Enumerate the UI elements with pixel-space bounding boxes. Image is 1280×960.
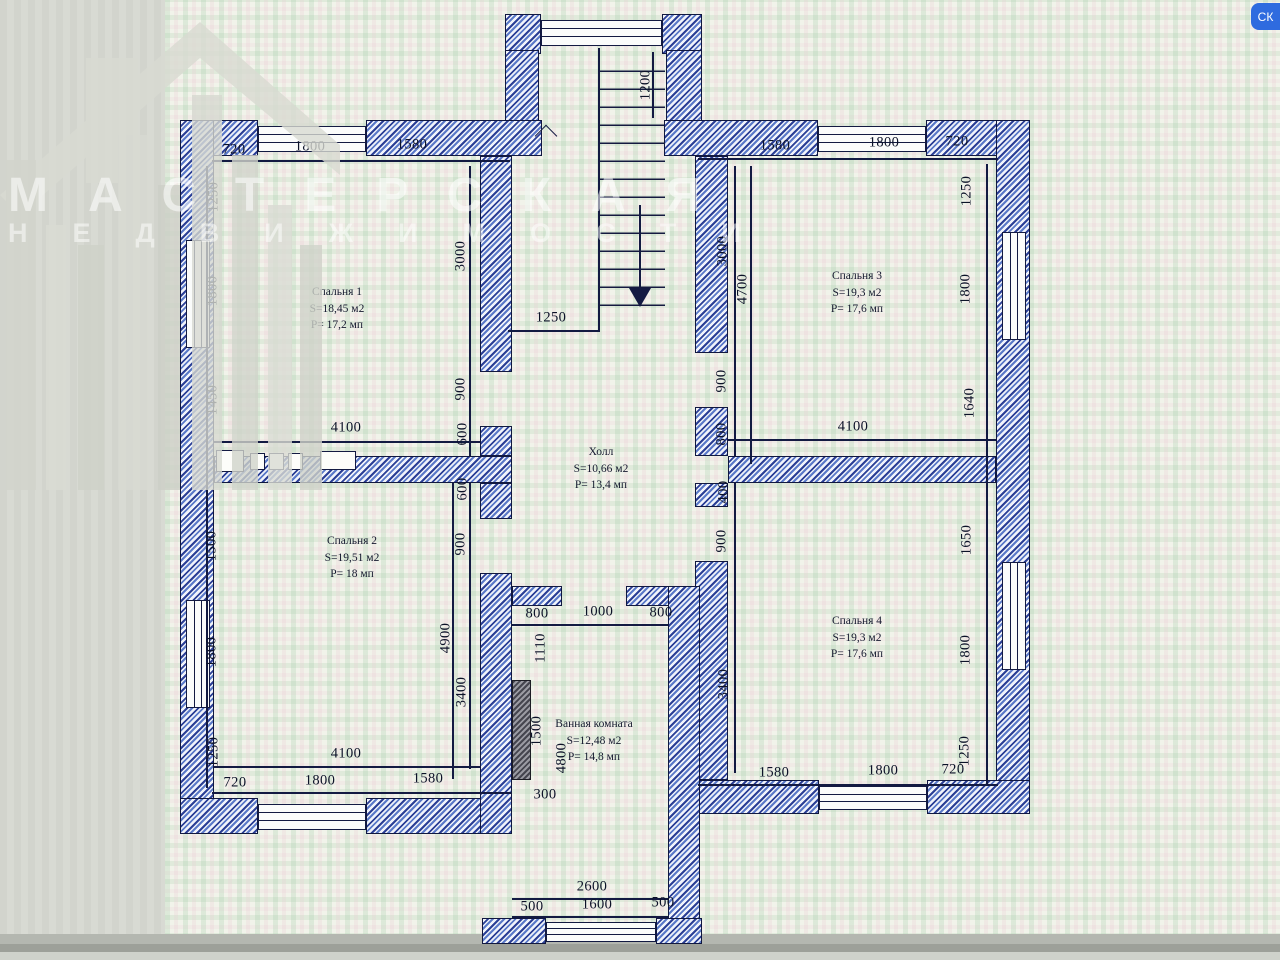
dim-label: 3400 <box>454 677 471 708</box>
room-perimeter: P= 13,4 мп <box>521 477 681 494</box>
dim-label: 1580 <box>397 137 428 154</box>
dim-label: 1580 <box>413 771 444 788</box>
wall-segment <box>180 798 258 834</box>
dim-label: 1800 <box>868 763 899 780</box>
dim-label: 4700 <box>735 274 752 305</box>
dim-label: 300 <box>534 787 557 804</box>
room-name: Спальня 2 <box>272 533 432 550</box>
room-name: Спальня 1 <box>257 284 417 301</box>
dim-label: 1000 <box>583 604 614 621</box>
dim-label: 600 <box>455 423 472 446</box>
room-label-bedroom1: Спальня 1 S=18,45 м2 P= 17,2 мп <box>257 284 417 334</box>
page-edge-shadow <box>0 944 1280 952</box>
dim-label: 4900 <box>438 623 455 654</box>
window <box>258 804 366 830</box>
room-area: S=12,48 м2 <box>552 733 636 750</box>
dim-label: 720 <box>224 775 247 792</box>
room-perimeter: P= 18 мп <box>272 566 432 583</box>
dim-label: 500 <box>652 895 675 912</box>
dim-label: 1450 <box>205 385 222 416</box>
dimension-line <box>469 166 471 456</box>
wall-segment <box>996 120 1030 814</box>
wall-segment <box>505 50 539 122</box>
wall-segment <box>662 14 702 54</box>
dim-label: 2600 <box>577 879 608 896</box>
stair-divider-line <box>598 48 600 332</box>
room-area: S=19,3 м2 <box>777 285 937 302</box>
wall-segment <box>480 483 512 519</box>
dim-label: 4100 <box>331 420 362 437</box>
dimension-line <box>206 166 208 788</box>
wall-niche <box>216 450 244 472</box>
dim-label: 900 <box>714 370 731 393</box>
window <box>1002 232 1026 340</box>
room-area: S=19,51 м2 <box>272 550 432 567</box>
dim-label: 1800 <box>295 139 326 156</box>
dimension-line <box>512 916 668 918</box>
dim-label: 1200 <box>638 70 655 101</box>
dim-label: 1800 <box>869 135 900 152</box>
dim-label: 1250 <box>206 737 223 768</box>
dim-label: 1110 <box>533 633 550 663</box>
dim-label: 900 <box>453 378 470 401</box>
room-perimeter: P= 17,6 мп <box>777 301 937 318</box>
dim-label: 1640 <box>962 388 979 419</box>
wall-segment <box>666 50 702 122</box>
dim-label: 600 <box>455 478 472 501</box>
dim-label: 1580 <box>760 138 791 155</box>
wall-segment <box>664 120 818 156</box>
dimension-line <box>212 792 512 794</box>
wall-segment <box>480 156 512 372</box>
room-area: S=19,3 м2 <box>777 630 937 647</box>
window <box>546 922 656 942</box>
wall-segment <box>480 426 512 456</box>
room-name: Ванная комната <box>552 716 636 733</box>
dim-label: 400 <box>716 481 733 504</box>
wall-segment <box>656 918 702 944</box>
dimension-line <box>750 166 752 464</box>
stair-arrow-stem <box>639 205 641 290</box>
room-name: Спальня 3 <box>777 268 937 285</box>
wall-segment <box>505 14 541 54</box>
dim-label: 3000 <box>453 241 470 272</box>
window <box>1002 562 1026 670</box>
wall-segment <box>728 456 996 483</box>
dimension-line <box>698 158 998 160</box>
room-name: Холл <box>521 444 681 461</box>
page-edge-light <box>0 952 1280 960</box>
wall-niche <box>320 451 356 470</box>
dimension-line <box>469 483 471 769</box>
dim-label: 900 <box>714 530 731 553</box>
dim-label: 800 <box>526 606 549 623</box>
wall-segment <box>668 586 700 934</box>
wall-niche <box>269 453 284 470</box>
dim-label: 1500 <box>529 716 546 747</box>
dim-label: 720 <box>942 762 965 779</box>
dimension-line <box>734 166 736 456</box>
dim-label: 1800 <box>305 773 336 790</box>
stair-treads <box>598 54 665 306</box>
wall-niche <box>288 453 303 470</box>
dim-label: 1250 <box>536 310 567 327</box>
window <box>541 20 662 46</box>
dim-label: 1580 <box>759 765 790 782</box>
wall-niche <box>250 453 265 470</box>
dimension-line <box>728 439 996 441</box>
dim-label: 1800 <box>205 276 222 307</box>
dim-label: 720 <box>946 134 969 151</box>
room-perimeter: P= 17,2 мп <box>257 317 417 334</box>
dimension-line <box>986 164 988 784</box>
wall-segment <box>480 573 512 834</box>
room-label-bedroom3: Спальня 3 S=19,3 м2 P= 17,6 мп <box>777 268 937 318</box>
dim-label: 3400 <box>716 669 733 700</box>
dim-label: 500 <box>521 899 544 916</box>
dim-label: 1800 <box>958 635 975 666</box>
stair-down-arrow-icon <box>629 288 651 307</box>
room-name: Спальня 4 <box>777 613 937 630</box>
dim-label: 1650 <box>959 525 976 556</box>
dimension-line <box>512 624 668 626</box>
dim-label: 1250 <box>959 176 976 207</box>
dimension-line <box>698 784 998 786</box>
room-perimeter: P= 17,6 мп <box>777 646 937 663</box>
dim-label: 1250 <box>206 182 223 213</box>
dim-label: 900 <box>453 533 470 556</box>
dimension-line <box>212 160 510 162</box>
dim-label: 3000 <box>715 236 732 267</box>
room-perimeter: P= 14,8 мп <box>552 749 636 766</box>
room-label-bedroom4: Спальня 4 S=19,3 м2 P= 17,6 мп <box>777 613 937 663</box>
dimension-line <box>214 766 480 768</box>
dimension-line <box>734 483 736 773</box>
dim-label: 800 <box>650 605 673 622</box>
stair-bottom-line <box>508 330 598 332</box>
room-label-bathroom: Ванная комната S=12,48 м2 P= 14,8 мп <box>552 716 636 766</box>
wall-segment <box>366 120 542 156</box>
room-label-hall: Холл S=10,66 м2 P= 13,4 мп <box>521 444 681 494</box>
wall-segment <box>482 918 546 944</box>
dim-label: 1800 <box>958 274 975 305</box>
dim-label: 4100 <box>331 746 362 763</box>
room-label-bedroom2: Спальня 2 S=19,51 м2 P= 18 мп <box>272 533 432 583</box>
wall-segment <box>180 120 214 834</box>
window <box>819 786 927 810</box>
dim-label: 1800 <box>204 637 221 668</box>
dim-label: 720 <box>223 142 246 159</box>
dim-label: 800 <box>714 423 731 446</box>
dim-label: 4100 <box>838 419 869 436</box>
room-area: S=18,45 м2 <box>257 301 417 318</box>
corner-chip-button[interactable]: СК <box>1251 3 1280 30</box>
dim-label: 1600 <box>582 897 613 914</box>
dim-label: 1500 <box>204 531 221 562</box>
room-area: S=10,66 м2 <box>521 461 681 478</box>
dimension-line <box>214 441 480 443</box>
wall-segment <box>512 586 562 606</box>
